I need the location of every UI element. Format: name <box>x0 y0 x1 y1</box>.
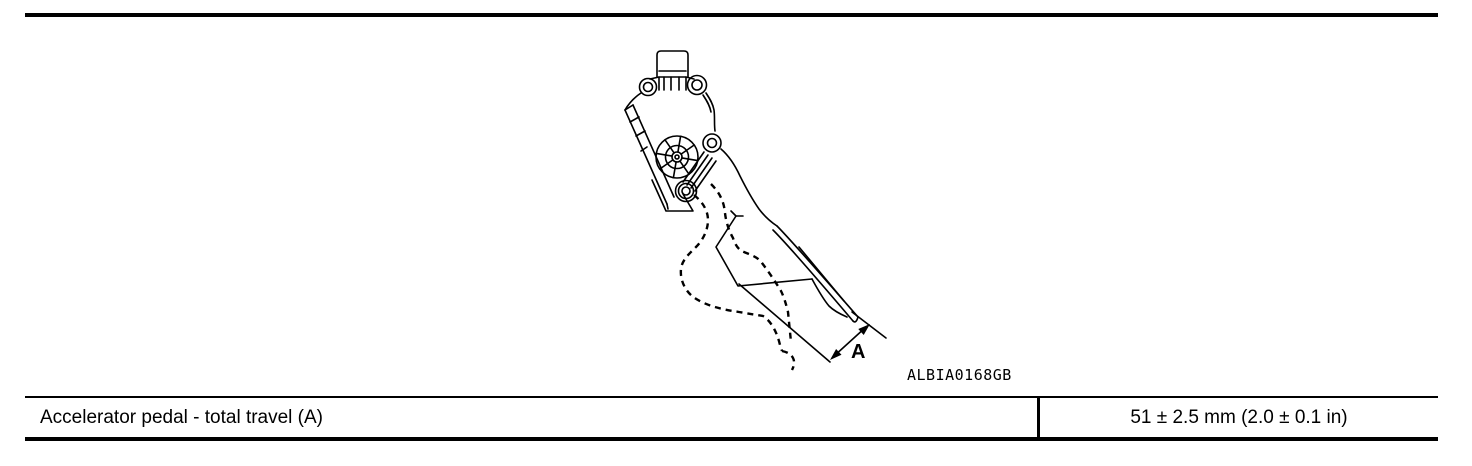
return-spring-wheel <box>656 136 698 178</box>
figure-reference-code: ALBIA0168GB <box>907 368 1012 382</box>
spec-value-cell: 51 ± 2.5 mm (2.0 ± 0.1 in) <box>1040 398 1438 437</box>
section-divider-rule <box>25 13 1438 17</box>
spec-table: Accelerator pedal - total travel (A) 51 … <box>25 396 1438 441</box>
travel-dimension: A <box>739 284 886 363</box>
accelerator-pedal-diagram: A <box>608 42 908 382</box>
dimension-label-A: A <box>851 341 865 363</box>
extension-line-lower <box>739 284 830 362</box>
manual-page: A ALBIA0168GB Accelerator pedal - total … <box>0 0 1472 466</box>
pedal-depressed-outline <box>681 184 794 370</box>
spec-label-cell: Accelerator pedal - total travel (A) <box>25 398 1040 437</box>
